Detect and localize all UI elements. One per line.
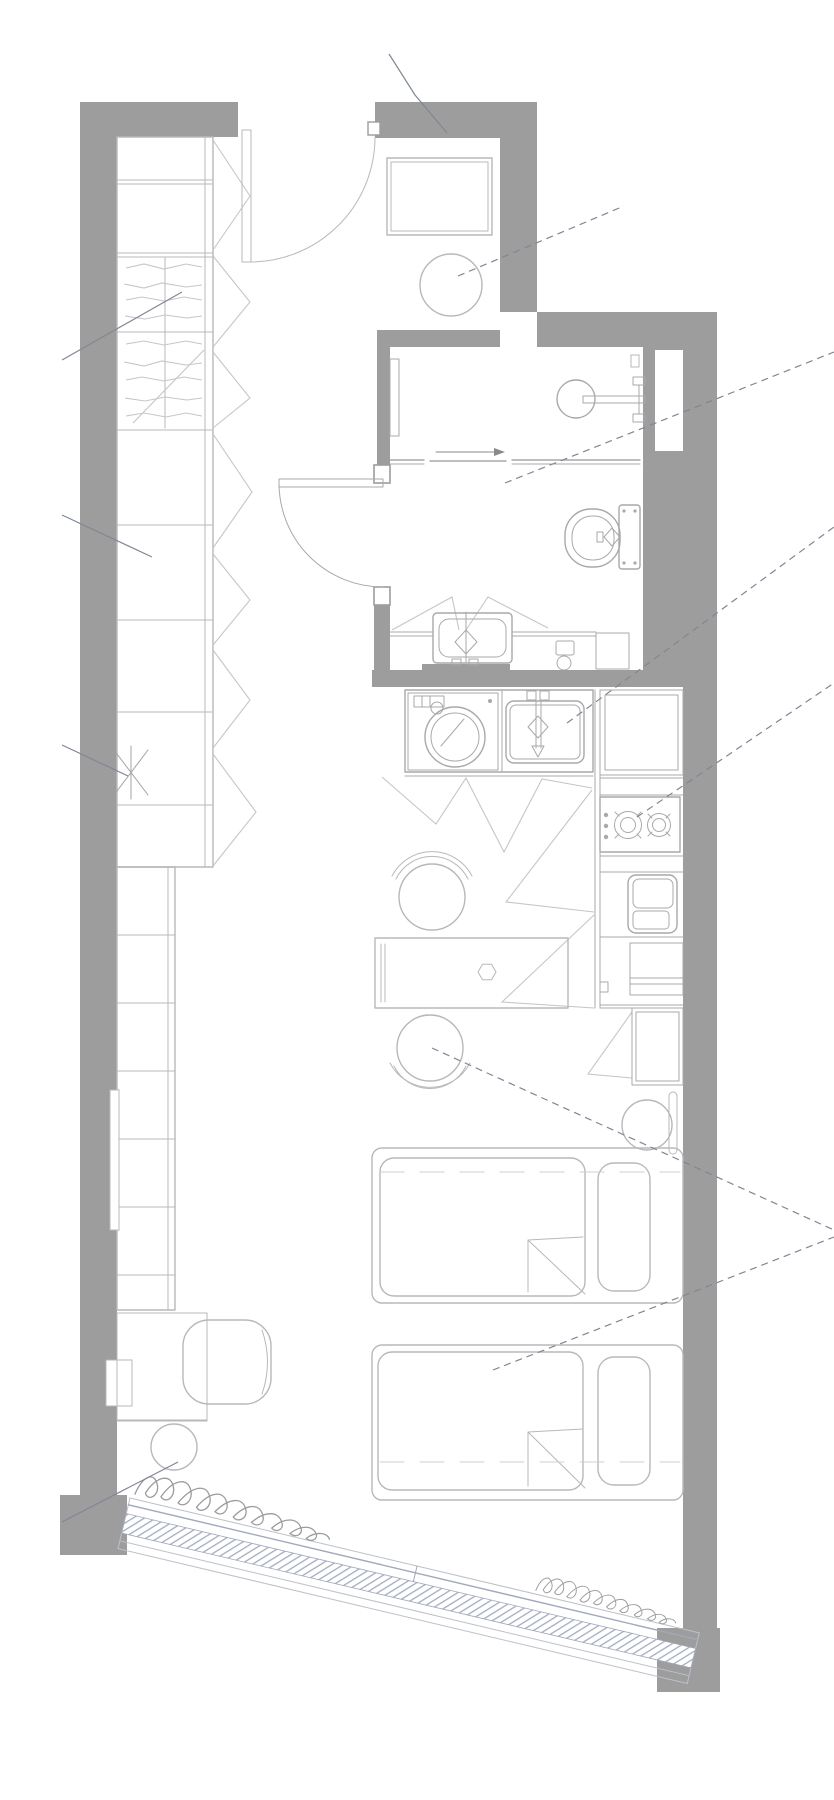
storage-wall bbox=[106, 137, 213, 1420]
kitchen-counter bbox=[405, 690, 593, 772]
dining-area bbox=[375, 852, 568, 1089]
clothes-hangers bbox=[124, 264, 204, 423]
sink-tap-spout bbox=[532, 746, 544, 757]
window-glazing bbox=[122, 1498, 700, 1668]
radiator-strip bbox=[110, 1090, 119, 1230]
duvet bbox=[378, 1352, 583, 1490]
shower-head bbox=[557, 377, 645, 422]
toilet bbox=[565, 505, 640, 569]
entry-door-strike-block bbox=[368, 122, 380, 135]
side-table bbox=[151, 1424, 197, 1470]
washing-machine bbox=[408, 693, 498, 770]
floor-plan-drawing bbox=[0, 0, 834, 1800]
armchair bbox=[183, 1320, 271, 1404]
pillow bbox=[598, 1163, 650, 1291]
kitchen-sink bbox=[506, 691, 584, 763]
leader-stool bbox=[458, 206, 624, 276]
slide-arrow-head bbox=[494, 448, 505, 456]
walls bbox=[60, 102, 720, 1692]
chair-north bbox=[392, 852, 472, 930]
leader-chair bbox=[432, 1048, 834, 1230]
entry-hall bbox=[242, 130, 492, 316]
kitchen bbox=[405, 690, 683, 1085]
sink-tap-handle bbox=[528, 716, 548, 738]
bathroom bbox=[279, 359, 645, 670]
duvet bbox=[380, 1158, 585, 1296]
dining-table bbox=[375, 938, 568, 1008]
shelving-dividers bbox=[117, 935, 175, 1275]
kitchen-tall-run bbox=[595, 690, 683, 1008]
leader-lines bbox=[62, 54, 834, 1522]
duvet-fold bbox=[528, 1429, 585, 1488]
bathroom-door-swing-arc bbox=[279, 483, 383, 587]
shoe-cabinet-inner bbox=[391, 162, 488, 231]
utility-asterisk bbox=[114, 746, 148, 799]
side-fixture bbox=[556, 641, 574, 670]
oven-drawer bbox=[628, 875, 677, 933]
wall-cabinet-units bbox=[630, 943, 683, 1085]
window-band bbox=[118, 1498, 699, 1683]
wall-structure bbox=[60, 102, 720, 1692]
wall-niche bbox=[627, 350, 643, 378]
cabinet-notch bbox=[600, 982, 608, 992]
bed-centerlines bbox=[380, 1172, 680, 1462]
chair-south bbox=[390, 1015, 470, 1089]
lounge-corner bbox=[117, 1320, 271, 1470]
door-frame-block-bottom bbox=[374, 587, 390, 605]
wall-box bbox=[106, 1360, 132, 1406]
pillow bbox=[598, 1357, 650, 1485]
shoe-cabinet bbox=[387, 158, 492, 235]
sliding-shower-partition bbox=[390, 448, 640, 464]
bedside-stool bbox=[622, 1100, 672, 1150]
vanity-end-cabinet bbox=[596, 633, 629, 669]
sleeping-area bbox=[372, 1092, 683, 1500]
shower-wall-panel bbox=[390, 359, 399, 436]
duct-shaft bbox=[655, 350, 683, 451]
entry-stool bbox=[420, 254, 482, 316]
cooktop bbox=[600, 797, 680, 852]
entry-door-swing-arc bbox=[250, 137, 375, 262]
bathroom-door-leaf bbox=[279, 479, 383, 487]
glazing-hatch bbox=[122, 1514, 696, 1668]
wall-unit-door-swing bbox=[588, 1012, 632, 1078]
duvet-fold bbox=[528, 1237, 585, 1294]
washbasin-vanity bbox=[390, 612, 596, 665]
floor-plan-page bbox=[0, 0, 834, 1800]
armchair-back bbox=[262, 1330, 268, 1394]
bed-1 bbox=[372, 1148, 683, 1303]
shelving-column bbox=[117, 867, 175, 1310]
wall-strip bbox=[669, 1092, 677, 1154]
door-frame-block-top bbox=[374, 465, 390, 483]
table-object bbox=[478, 964, 496, 980]
wardrobe-door-swings bbox=[213, 140, 256, 866]
kitchen-base-door-swings bbox=[382, 777, 592, 852]
kitchen-tall-door-swings bbox=[502, 790, 594, 1008]
bed-2 bbox=[372, 1345, 683, 1500]
